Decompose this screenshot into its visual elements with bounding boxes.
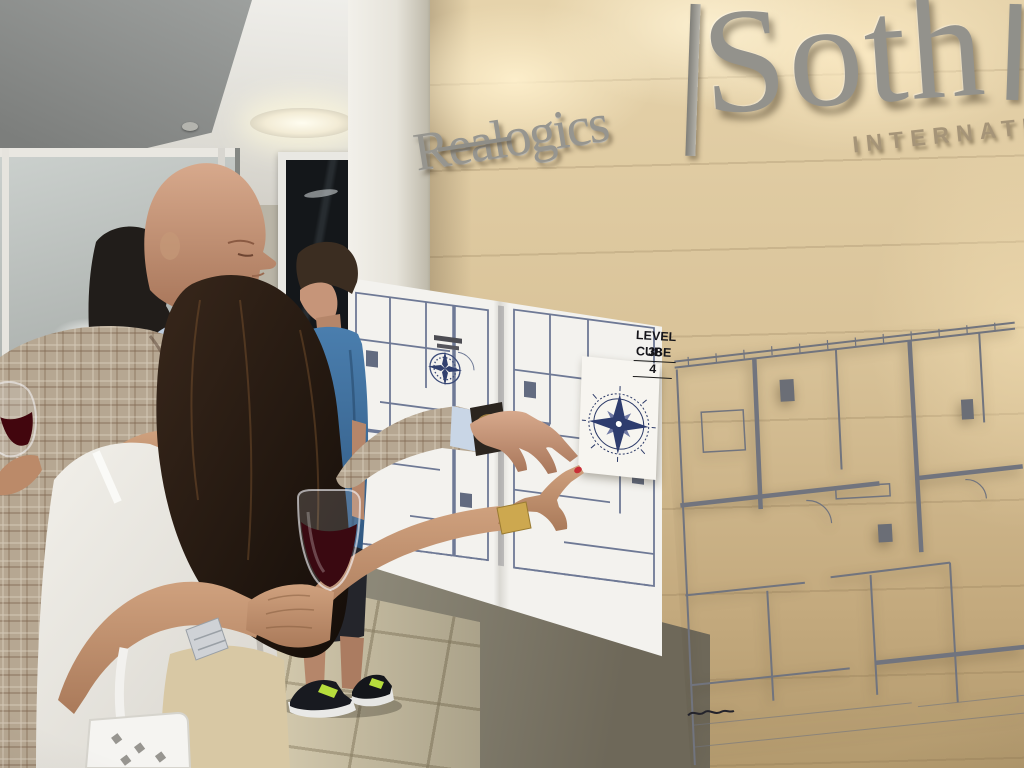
white-handbag: [86, 713, 190, 768]
office-event-photo: Realogics Soth INTERNATIO: [0, 0, 1024, 768]
gold-watch: [497, 502, 531, 534]
people-foreground: [0, 0, 1024, 768]
pointing-hand: [470, 411, 578, 474]
bald-man-pointing-arm: [336, 402, 578, 488]
